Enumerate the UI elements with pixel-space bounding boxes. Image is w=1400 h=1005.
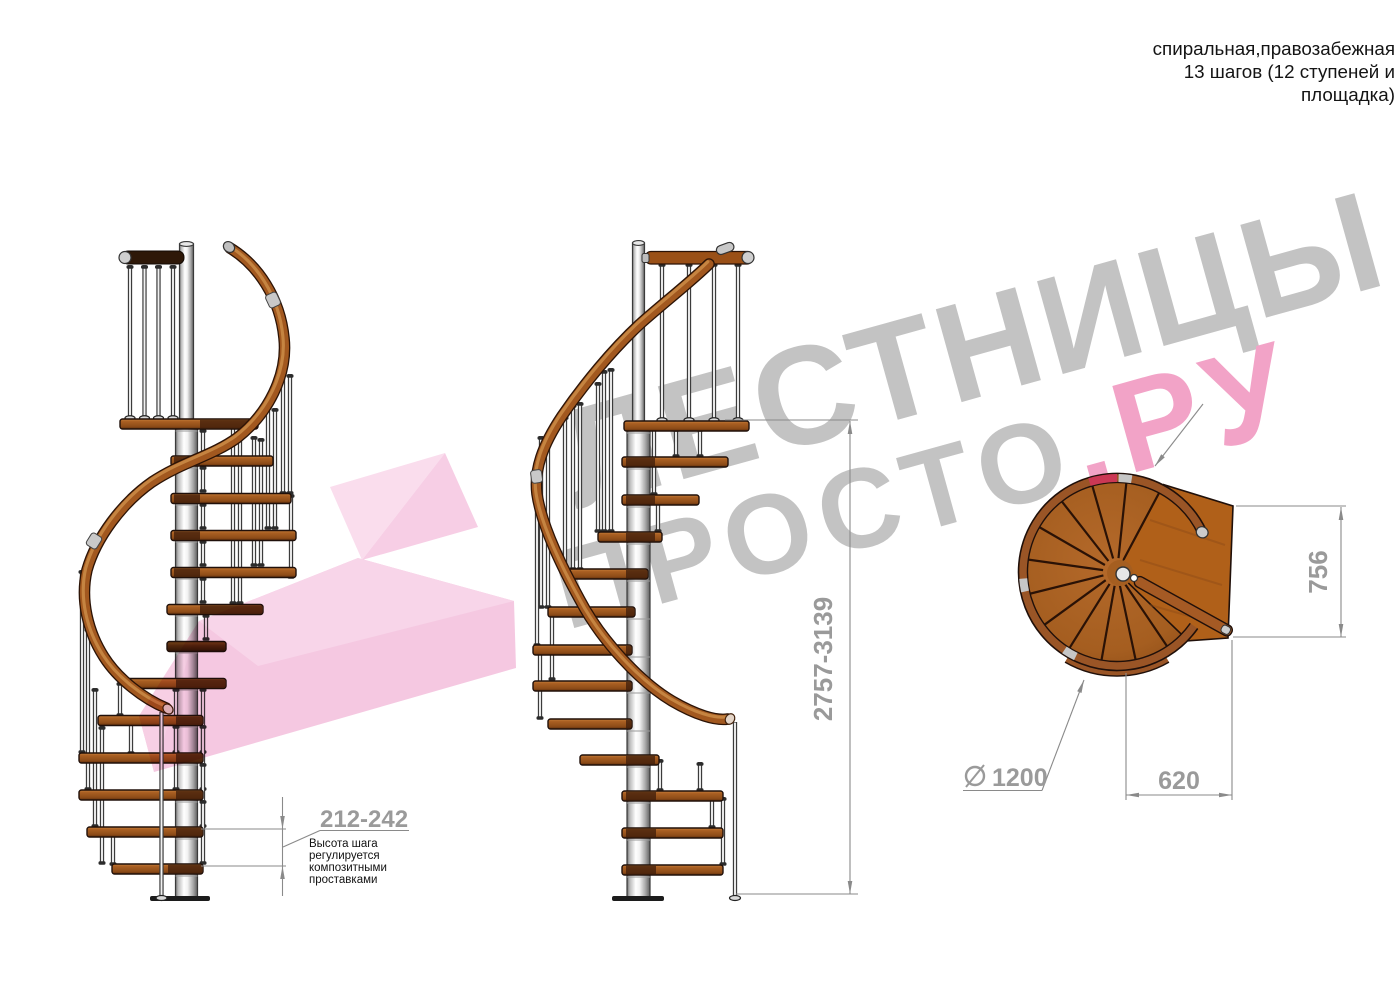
svg-text:спиральная,правозабежная: спиральная,правозабежная (1153, 38, 1395, 59)
svg-text:212-242: 212-242 (320, 806, 408, 833)
svg-text:регулируется: регулируется (309, 850, 380, 862)
svg-text:1200: 1200 (992, 764, 1048, 792)
svg-text:13 шагов (12 ступеней и: 13 шагов (12 ступеней и (1184, 61, 1395, 82)
svg-text:756: 756 (1303, 550, 1333, 593)
svg-text:620: 620 (1158, 767, 1200, 795)
svg-text:композитными: композитными (309, 862, 387, 874)
svg-text:Высота шага: Высота шага (309, 838, 378, 850)
svg-text:площадка): площадка) (1301, 84, 1395, 105)
svg-text:проставками: проставками (309, 874, 377, 886)
svg-text:2757-3139: 2757-3139 (808, 597, 838, 721)
